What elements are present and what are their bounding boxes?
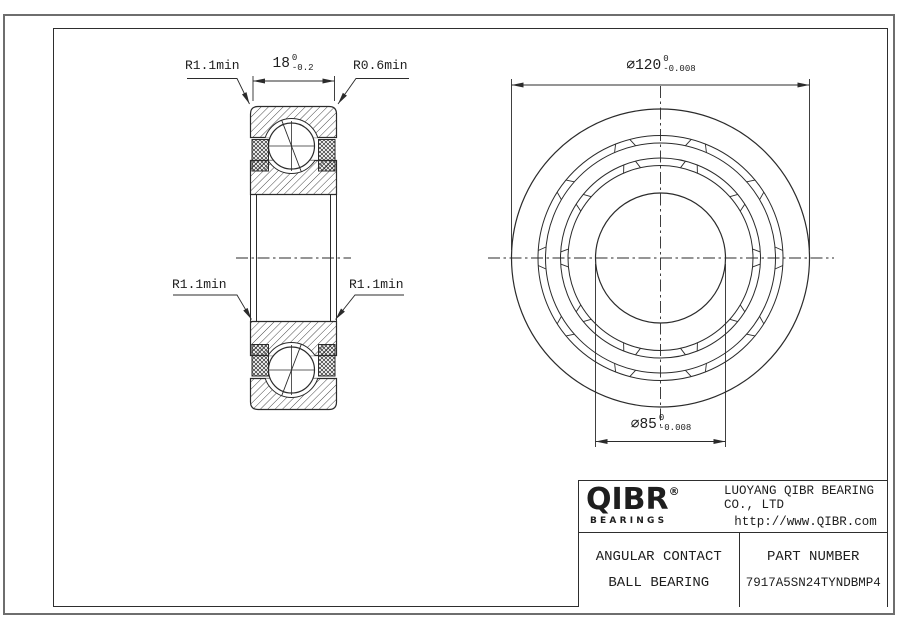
company-website: http://www.QIBR.com [734, 515, 877, 529]
cage-section-top-left [252, 140, 269, 172]
brand-logo-text: QIBR [586, 485, 669, 515]
leader-r-mid-right [336, 295, 405, 320]
brand-logo: QIBR® BEARINGS [579, 481, 724, 532]
registered-trademark-icon: ® [669, 485, 680, 498]
company-info: LUOYANG QIBR BEARING CO., LTD http://www… [724, 481, 887, 532]
dim-width-18 [253, 76, 335, 101]
cage-section-top-right [319, 140, 336, 172]
drawing-sheet: R1.1min R0.6min R1.1min R1.1min 18 0 -0.… [0, 0, 900, 636]
leader-r-top-right [338, 79, 409, 105]
dim-width-tol-lower: -0.2 [292, 63, 314, 73]
product-name-line2: BALL BEARING [608, 575, 709, 591]
dim-od-tol-upper: 0 [663, 54, 695, 64]
brand-logo-subtext: BEARINGS [590, 516, 724, 526]
dim-bore-tol-lower: -0.008 [659, 423, 691, 433]
cage-section-bottom-right [319, 345, 336, 377]
dim-label-bore-diameter: ∅85 0 -0.008 [631, 415, 692, 434]
title-block: QIBR® BEARINGS LUOYANG QIBR BEARING CO.,… [578, 480, 887, 607]
cage-section-bottom-left [252, 345, 269, 377]
dim-width-value: 18 [272, 56, 289, 72]
section-bottom [251, 322, 337, 410]
dim-bore-tol-upper: 0 [659, 413, 691, 423]
leader-r-top-left [187, 79, 250, 105]
section-top [251, 107, 337, 195]
dim-label-outer-diameter: ∅120 0 -0.008 [626, 56, 695, 75]
title-block-detail-row: ANGULAR CONTACT BALL BEARING PART NUMBER… [579, 533, 887, 607]
dim-bore-value: ∅85 [631, 416, 657, 433]
part-number-label: PART NUMBER [767, 549, 859, 565]
part-number-value: 7917A5SN24TYNDBMP4 [746, 576, 881, 590]
radius-note-mid-left: R1.1min [172, 277, 227, 292]
product-name-line1: ANGULAR CONTACT [596, 549, 722, 565]
section-view [173, 76, 409, 410]
dim-od-tol-lower: -0.008 [663, 64, 695, 74]
leader-r-mid-left [173, 295, 252, 320]
dim-width-tol-upper: 0 [292, 53, 314, 63]
part-number-cell: PART NUMBER 7917A5SN24TYNDBMP4 [740, 533, 888, 607]
radius-note-mid-right: R1.1min [349, 277, 404, 292]
dim-od-value: ∅120 [626, 57, 661, 74]
dim-label-width: 18 0 -0.2 [272, 55, 313, 74]
product-name-cell: ANGULAR CONTACT BALL BEARING [579, 533, 740, 607]
radius-note-top-right: R0.6min [353, 58, 408, 73]
title-block-header-row: QIBR® BEARINGS LUOYANG QIBR BEARING CO.,… [579, 481, 887, 533]
radius-note-top-left: R1.1min [185, 58, 240, 73]
company-name: LUOYANG QIBR BEARING CO., LTD [724, 484, 887, 512]
front-view [488, 79, 834, 447]
